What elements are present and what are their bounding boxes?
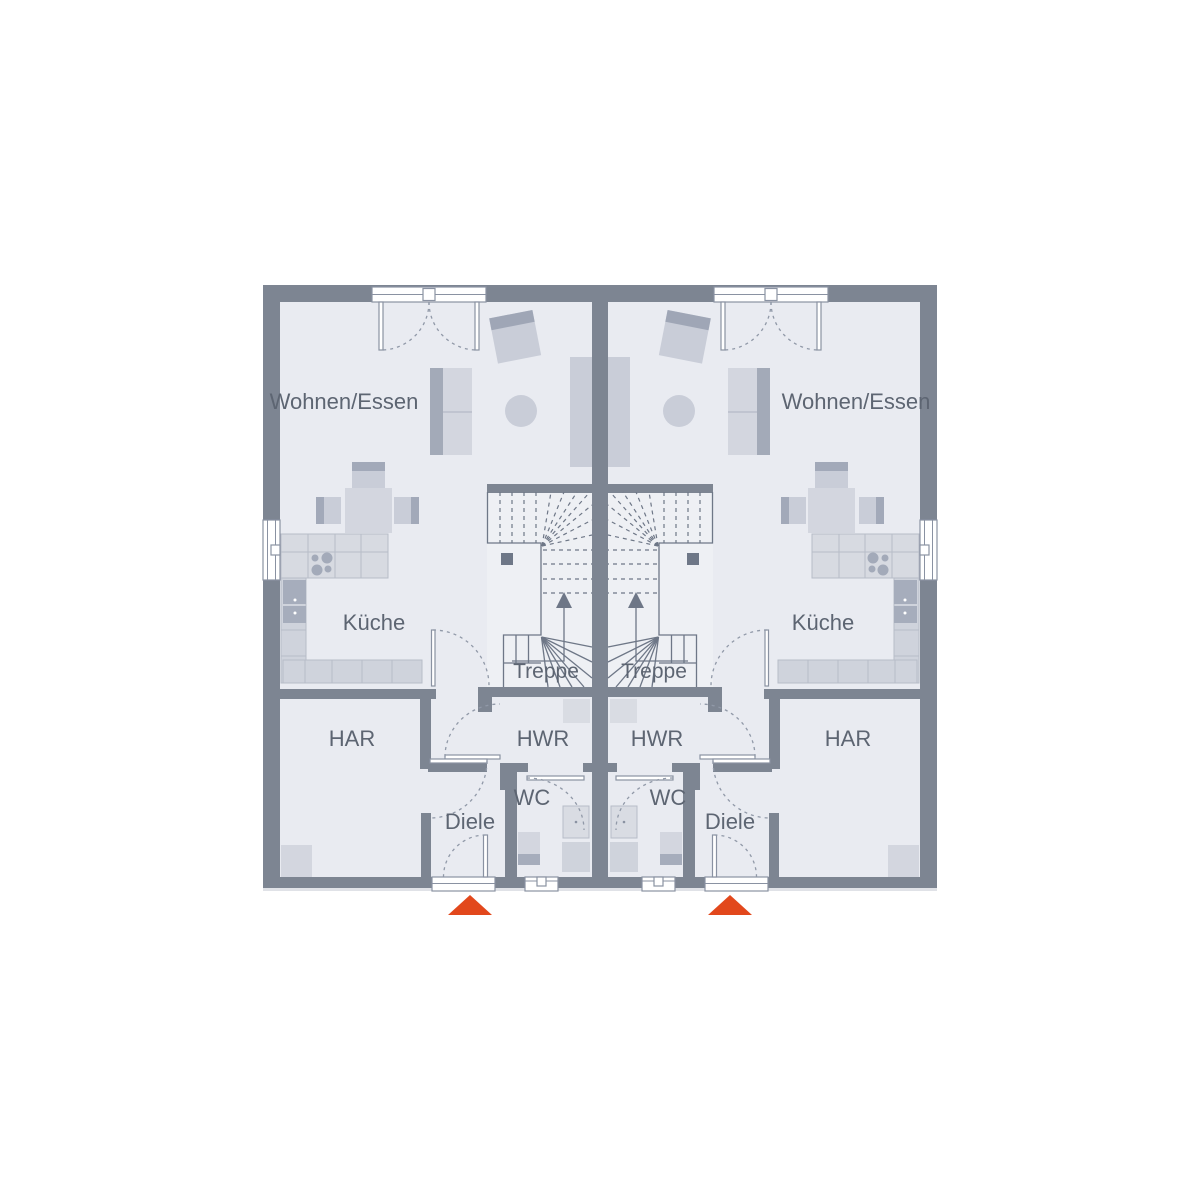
kitchen-appliances <box>283 580 306 623</box>
storage-cabinet <box>281 845 312 877</box>
label-wc-left: WC <box>514 785 551 810</box>
building-shadow <box>263 888 937 891</box>
label-utility-right: HWR <box>631 726 684 751</box>
label-storage-right: HAR <box>825 726 871 751</box>
label-hall-left: Diele <box>445 809 495 834</box>
armchair <box>489 310 541 364</box>
side-window <box>263 520 280 580</box>
stairwell-floor <box>487 492 592 687</box>
party-wall <box>592 302 608 877</box>
newel-post <box>501 553 513 565</box>
door-handle-icon <box>423 289 435 301</box>
label-wc-right: WC <box>650 785 687 810</box>
sofa <box>430 368 472 455</box>
label-utility-left: HWR <box>517 726 570 751</box>
label-storage-left: HAR <box>329 726 375 751</box>
side-table <box>505 395 537 427</box>
floor-plan-canvas: Wohnen/Essen Wohnen/Essen Küche Küche Tr… <box>0 0 1200 1200</box>
sideboard <box>570 357 592 467</box>
label-living-left: Wohnen/Essen <box>270 389 419 414</box>
label-stairs-right: Treppe <box>621 660 687 683</box>
label-hall-right: Diele <box>705 809 755 834</box>
utility-cabinet <box>563 699 590 723</box>
label-kitchen-right: Küche <box>792 610 854 635</box>
label-kitchen-left: Küche <box>343 610 405 635</box>
label-stairs-left: Treppe <box>513 660 579 683</box>
wc-window <box>525 877 558 891</box>
label-living-right: Wohnen/Essen <box>782 389 931 414</box>
